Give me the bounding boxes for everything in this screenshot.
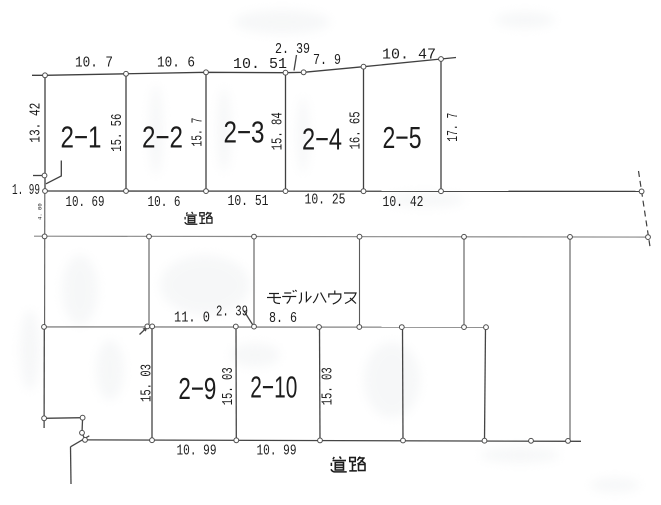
svg-text:8. 6: 8. 6 [269,310,297,327]
svg-text:10. 25: 10. 25 [305,192,346,209]
svg-text:16. 65: 16. 65 [348,111,365,149]
svg-text:13. 42: 13. 42 [28,103,45,143]
svg-text:15. 84: 15. 84 [270,112,287,150]
svg-text:10. 99: 10. 99 [177,443,217,460]
svg-text:2−3: 2−3 [224,115,265,150]
svg-text:10. 7: 10. 7 [75,55,113,72]
svg-text:2. 39: 2. 39 [275,41,310,58]
svg-text:2. 39: 2. 39 [216,304,248,321]
svg-text:15. 03: 15. 03 [320,367,337,405]
svg-text:1. 99: 1. 99 [12,182,40,199]
svg-text:10. 6: 10. 6 [148,194,181,211]
svg-text:2−4: 2−4 [302,122,342,157]
svg-text:11. 0: 11. 0 [174,310,210,327]
svg-text:2−5: 2−5 [383,120,422,155]
svg-text:10. 6: 10. 6 [157,55,195,72]
svg-text:10. 99: 10. 99 [257,443,297,460]
svg-text:2−9: 2−9 [178,371,216,406]
svg-text:15. 7: 15. 7 [190,118,207,147]
svg-text:10. 51: 10. 51 [228,193,269,210]
svg-text:2−2: 2−2 [142,119,183,154]
svg-text:10. 69: 10. 69 [66,194,105,211]
svg-text:4. 00: 4. 00 [37,203,44,220]
svg-text:15. 03: 15. 03 [220,367,237,405]
svg-text:10. 42: 10. 42 [383,194,424,211]
svg-text:17. 7: 17. 7 [445,113,462,142]
svg-text:2−10: 2−10 [250,370,297,405]
svg-text:10. 47: 10. 47 [382,47,436,64]
svg-text:15. 03: 15. 03 [139,364,156,402]
svg-text:15. 56: 15. 56 [109,114,126,152]
svg-text:2−1: 2−1 [61,119,102,154]
svg-text:7. 9: 7. 9 [313,52,341,69]
svg-text:10. 51: 10. 51 [233,56,287,73]
